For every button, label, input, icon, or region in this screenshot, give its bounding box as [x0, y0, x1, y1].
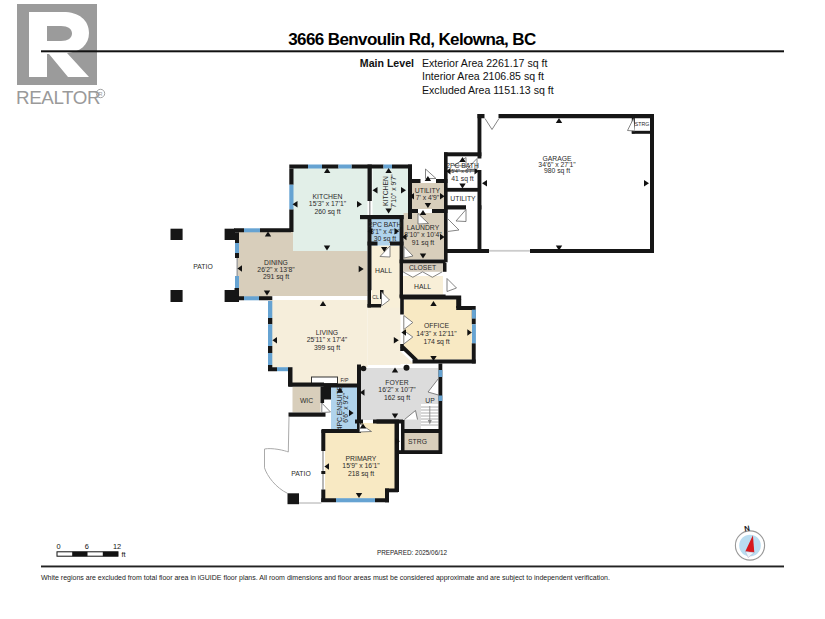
svg-text:OFFICE: OFFICE [424, 322, 449, 329]
svg-text:CL: CL [372, 294, 379, 300]
svg-text:15'9" x 16'1": 15'9" x 16'1" [342, 462, 380, 469]
svg-text:6: 6 [85, 542, 89, 551]
svg-text:F/P: F/P [340, 377, 349, 383]
svg-text:REALTOR: REALTOR [16, 87, 100, 108]
svg-text:0: 0 [56, 542, 60, 551]
svg-text:980 sq ft: 980 sq ft [544, 167, 570, 175]
svg-text:R: R [99, 91, 103, 97]
svg-text:HALL: HALL [414, 283, 431, 290]
svg-text:8'10" x 10'4": 8'10" x 10'4" [404, 231, 442, 238]
svg-text:30 sq ft: 30 sq ft [374, 235, 396, 243]
svg-text:CLOSET: CLOSET [409, 264, 436, 271]
svg-text:15'3" x 17'1": 15'3" x 17'1" [309, 200, 347, 207]
svg-text:291 sq ft: 291 sq ft [263, 273, 289, 281]
svg-text:PATIO: PATIO [193, 263, 212, 270]
svg-text:41 sq ft: 41 sq ft [451, 175, 473, 183]
svg-text:ft: ft [122, 550, 126, 559]
svg-text:174 sq ft: 174 sq ft [423, 338, 449, 346]
svg-text:2PC BATH: 2PC BATH [369, 221, 402, 228]
svg-text:218 sq ft: 218 sq ft [348, 470, 374, 478]
svg-text:UTILITY: UTILITY [450, 195, 476, 202]
svg-text:6'6" x 9'2": 6'6" x 9'2" [342, 393, 349, 423]
svg-text:LIVING: LIVING [316, 329, 338, 336]
svg-text:Main Level: Main Level [360, 57, 414, 69]
svg-text:5'4" x 6'7": 5'4" x 6'7" [451, 168, 474, 174]
svg-text:PATIO: PATIO [291, 470, 310, 477]
svg-text:12: 12 [113, 542, 121, 551]
svg-text:KITCHEN: KITCHEN [313, 193, 343, 200]
svg-text:Exterior Area 2261.17 sq ft: Exterior Area 2261.17 sq ft [422, 57, 547, 69]
svg-text:KITCHEN: KITCHEN [382, 176, 389, 206]
svg-text:PREPARED: 2025/06/12: PREPARED: 2025/06/12 [377, 549, 448, 556]
svg-text:UTILITY: UTILITY [415, 187, 441, 194]
svg-text:HALL: HALL [375, 267, 392, 274]
svg-text:7' x 4'9": 7' x 4'9" [416, 194, 440, 201]
svg-text:399 sq ft: 399 sq ft [314, 344, 340, 352]
svg-text:Interior Area 2106.85 sq ft: Interior Area 2106.85 sq ft [422, 70, 544, 82]
svg-text:16'2" x 10'7": 16'2" x 10'7" [378, 386, 416, 393]
svg-text:DINING: DINING [264, 259, 288, 266]
svg-text:26'2" x 13'8": 26'2" x 13'8" [257, 266, 295, 273]
svg-text:WIC: WIC [300, 397, 313, 404]
svg-text:14'3" x 12'11": 14'3" x 12'11" [416, 330, 457, 337]
svg-text:162 sq ft: 162 sq ft [384, 394, 410, 402]
svg-text:260 sq ft: 260 sq ft [314, 208, 340, 216]
svg-text:FOYER: FOYER [385, 379, 409, 386]
svg-text:White regions are excluded fro: White regions are excluded from total fl… [41, 574, 610, 582]
svg-text:Excluded Area 1151.13 sq ft: Excluded Area 1151.13 sq ft [422, 84, 554, 96]
svg-text:LAUNDRY: LAUNDRY [407, 224, 440, 231]
svg-text:3666 Benvoulin Rd, Kelowna, BC: 3666 Benvoulin Rd, Kelowna, BC [288, 30, 536, 49]
svg-text:91 sq ft: 91 sq ft [412, 239, 434, 247]
svg-text:7'10" x 9'7": 7'10" x 9'7" [390, 174, 397, 208]
svg-text:PRIMARY: PRIMARY [346, 455, 377, 462]
svg-text:UP: UP [425, 397, 435, 404]
svg-text:STRG: STRG [408, 438, 427, 445]
svg-text:N: N [743, 524, 750, 534]
svg-text:STRG: STRG [635, 121, 649, 127]
svg-text:25'11" x 17'4": 25'11" x 17'4" [307, 336, 348, 343]
